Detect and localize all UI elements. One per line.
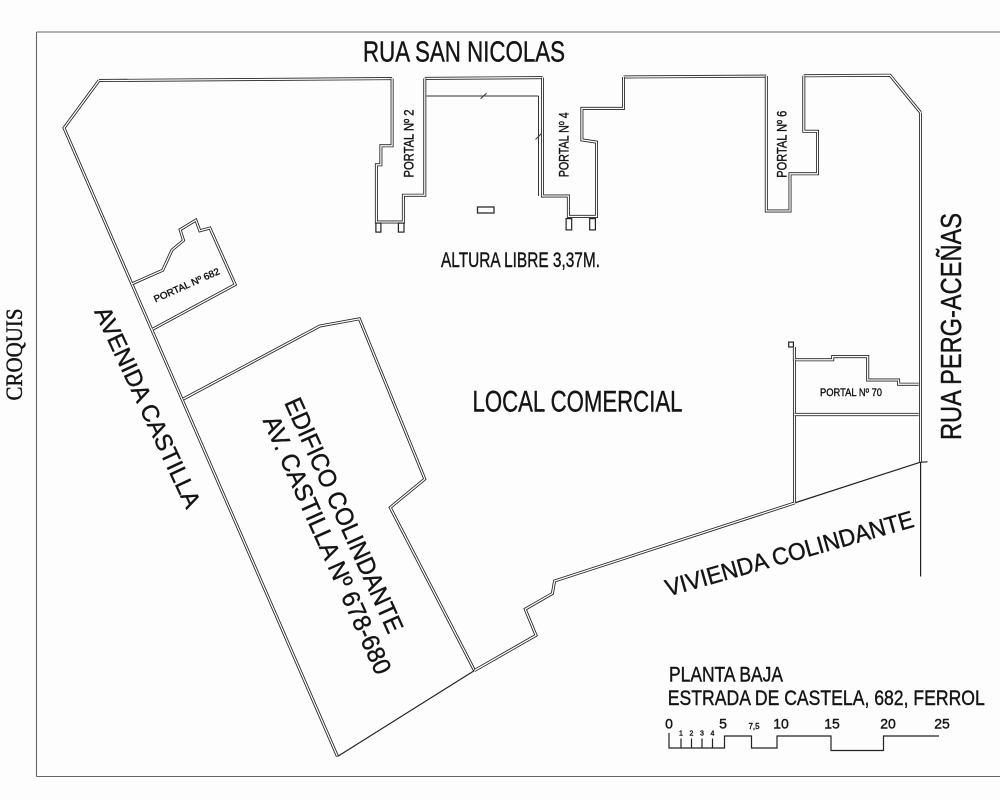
svg-text:7,5: 7,5 [748,722,760,731]
svg-text:PORTAL Nº 2: PORTAL Nº 2 [401,109,417,177]
svg-text:1: 1 [679,731,683,738]
svg-text:PORTAL Nº 70: PORTAL Nº 70 [820,387,882,399]
svg-text:ESTRADA DE CASTELA, 682, FERRO: ESTRADA DE CASTELA, 682, FERROL [668,687,985,710]
svg-text:5: 5 [719,716,727,732]
svg-text:2: 2 [690,731,694,738]
svg-text:PORTAL Nº 6: PORTAL Nº 6 [774,111,790,178]
svg-text:PORTAL Nº 4: PORTAL Nº 4 [556,112,572,177]
svg-text:VIVIENDA COLINDANTE: VIVIENDA COLINDANTE [662,506,917,602]
svg-text:CROQUIS: CROQUIS [2,309,27,401]
svg-text:RUA PERG-ACEÑAS: RUA PERG-ACEÑAS [934,213,968,440]
svg-text:0: 0 [665,716,673,732]
svg-text:10: 10 [773,716,789,732]
svg-text:PORTAL Nº 682: PORTAL Nº 682 [152,266,221,305]
svg-text:AVENIDA CASTILLA: AVENIDA CASTILLA [89,303,206,513]
svg-text:ALTURA LIBRE 3,37M.: ALTURA LIBRE 3,37M. [441,249,600,272]
svg-text:15: 15 [824,716,840,732]
svg-text:25: 25 [934,716,950,732]
svg-text:LOCAL COMERCIAL: LOCAL COMERCIAL [473,386,683,419]
svg-text:4: 4 [711,731,715,738]
svg-text:RUA SAN NICOLAS: RUA SAN NICOLAS [363,36,565,68]
svg-text:3: 3 [700,731,704,738]
svg-text:20: 20 [880,716,896,732]
svg-text:PLANTA BAJA: PLANTA BAJA [669,664,783,687]
